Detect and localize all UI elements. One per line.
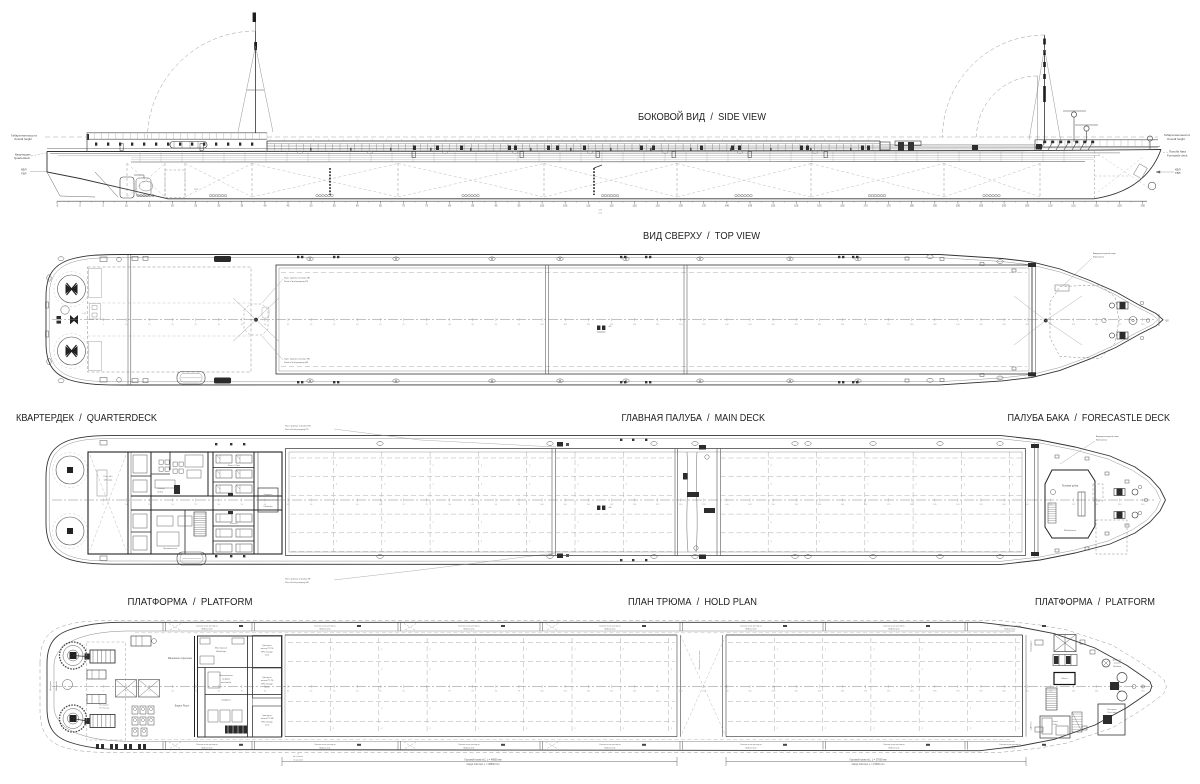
svg-text:Ballast tank: Ballast tank (202, 747, 214, 750)
svg-text:130: 130 (679, 204, 684, 208)
svg-text:Цистерна: Цистерна (263, 677, 273, 679)
svg-text:230: 230 (1141, 204, 1146, 208)
svg-text:Горл. приема топлива ПБ: Горл. приема топлива ПБ (284, 278, 310, 280)
svg-text:On position: On position (293, 759, 303, 762)
svg-text:Балластная цистерна: Балластная цистерна (196, 744, 218, 746)
svg-text:Балластная цистерна: Балластная цистерна (196, 625, 218, 627)
svg-text:Ballast tank: Ballast tank (889, 747, 901, 750)
svg-text:170: 170 (863, 204, 868, 208)
svg-text:Аккумуляторный ящик: Аккумуляторный ящик (1093, 252, 1116, 255)
svg-text:ПЛАТФОРМА / PLATFORM: ПЛАТФОРМА / PLATFORM (1035, 597, 1155, 608)
svg-text:Балластная цистерна: Балластная цистерна (599, 625, 621, 627)
svg-text:Cargo hold №1, L = 27600 mm: Cargo hold №1, L = 27600 mm (852, 763, 885, 766)
svg-text:190: 190 (956, 204, 961, 208)
svg-text:140: 140 (725, 204, 730, 208)
svg-text:Грузовой трюм №2, L = 48800 мм: Грузовой трюм №2, L = 48800 мм (465, 759, 502, 762)
svg-text:Quarterdeck: Quarterdeck (14, 156, 30, 160)
svg-text:Ballast tank: Ballast tank (605, 628, 617, 631)
svg-text:Battery box: Battery box (1093, 256, 1105, 259)
svg-text:Kladovaya: Kladovaya (264, 506, 274, 508)
svg-text:Galley: Galley (157, 491, 163, 493)
svg-text:135: 135 (702, 204, 707, 208)
svg-text:145: 145 (748, 204, 753, 208)
svg-text:Ballast tank: Ballast tank (889, 628, 901, 631)
svg-text:ВИД СВЕРХУ / TOP VIEW: ВИД СВЕРХУ / TOP VIEW (643, 231, 761, 242)
svg-text:ГЛАВНАЯ ПАЛУБА / MAIN DECK: ГЛАВНАЯ ПАЛУБА / MAIN DECK (622, 413, 766, 424)
svg-text:Машинное отделение: Машинное отделение (168, 657, 193, 660)
svg-text:запаса РТ ПБ: запаса РТ ПБ (261, 648, 274, 650)
svg-text:Тамбурная: Тамбурная (221, 700, 231, 702)
svg-text:ЦП кара: ЦП кара (104, 479, 113, 481)
svg-text:150: 150 (771, 204, 776, 208)
svg-text:Балластная цистерна: Балластная цистерна (740, 625, 762, 627)
svg-text:Рулевая рубка: Рулевая рубка (1062, 485, 1079, 488)
svg-text:Paint room: Paint room (1107, 711, 1117, 714)
svg-text:Пост НО: Пост НО (104, 476, 113, 478)
svg-text:Балластная цистерна: Балластная цистерна (740, 744, 762, 746)
svg-text:БОКОВОЙ ВИД / SIDE VIEW: БОКОВОЙ ВИД / SIDE VIEW (638, 110, 767, 123)
svg-text:Post of fuel pumping SB: Post of fuel pumping SB (285, 581, 309, 584)
svg-text:Ballast tank: Ballast tank (464, 628, 476, 631)
svg-text:HFO storage: HFO storage (261, 650, 273, 653)
svg-text:Cabin: Cabin (1053, 724, 1058, 726)
svg-text:Шахта: Шахта (1062, 678, 1069, 680)
svg-text:ГВЛ: ГВЛ (194, 189, 199, 191)
svg-text:КВАРТЕРДЕК / QUARTERDECK: КВАРТЕРДЕК / QUARTERDECK (16, 413, 157, 424)
svg-text:200: 200 (1002, 204, 1007, 208)
svg-text:Грузовой трюм №1, L = 27600 мм: Грузовой трюм №1, L = 27600 мм (850, 759, 887, 762)
svg-text:Цистерна: Цистерна (263, 645, 273, 647)
svg-text:Малярная: Малярная (1107, 709, 1116, 711)
svg-text:Point of fuel pumping SB: Point of fuel pumping SB (284, 361, 309, 364)
svg-text:Механическая: Механическая (219, 675, 232, 677)
svg-text:Каюта / Cabin: Каюта / Cabin (228, 465, 240, 467)
svg-text:Battery box: Battery box (1096, 439, 1108, 442)
svg-text:Аккумуляторный ящик: Аккумуляторный ящик (1096, 435, 1119, 438)
svg-text:100: 100 (540, 204, 545, 208)
svg-text:Overall height: Overall height (14, 137, 32, 141)
svg-text:Ballast tank: Ballast tank (605, 747, 617, 750)
svg-text:225: 225 (1117, 204, 1122, 208)
svg-text:155: 155 (794, 204, 799, 208)
svg-text:Балластная цистерна: Балластная цистерна (314, 625, 336, 627)
svg-text:Пост приема топлива ЛБ: Пост приема топлива ЛБ (285, 579, 311, 581)
svg-text:Wheelhouse: Wheelhouse (1064, 530, 1077, 532)
svg-text:нагрубка: нагрубка (222, 678, 231, 680)
svg-text:mechanical: mechanical (221, 682, 232, 684)
svg-text:Балластная цистерна: Балластная цистерна (883, 744, 905, 746)
svg-text:165: 165 (840, 204, 845, 208)
svg-text:tank: tank (265, 724, 269, 727)
svg-text:ПЛАН ТРЮМА / HOLD PLAN: ПЛАН ТРЮМА / HOLD PLAN (628, 597, 757, 608)
svg-text:Ballast tank: Ballast tank (202, 628, 214, 631)
svg-text:Afterpeak: Afterpeak (55, 680, 58, 690)
svg-text:шлюпка: шлюпка (1114, 663, 1122, 665)
svg-text:Cargo hold №2, L = 48800 mm: Cargo hold №2, L = 48800 mm (467, 763, 500, 766)
svg-text:215: 215 (1071, 204, 1076, 208)
svg-text:Ballast tank: Ballast tank (746, 628, 758, 631)
svg-text:Overall height: Overall height (1167, 137, 1185, 141)
svg-text:185: 185 (933, 204, 938, 208)
svg-text:Балластная цистерна: Балластная цистерна (999, 744, 1021, 746)
svg-text:Балластная цистерна: Балластная цистерна (458, 625, 480, 627)
svg-text:Ballast tank: Ballast tank (320, 747, 332, 750)
svg-text:Балластная цистерна: Балластная цистерна (599, 744, 621, 746)
svg-text:Ахтерпик: Ахтерпик (49, 681, 52, 690)
svg-text:ГВЛ: ГВЛ (1175, 171, 1180, 175)
svg-text:115: 115 (609, 204, 614, 208)
svg-text:Камбуз: Камбуз (158, 488, 165, 490)
svg-text:Ballast tank: Ballast tank (464, 747, 476, 750)
svg-text:195: 195 (979, 204, 984, 208)
svg-text:Каюта: Каюта (1052, 721, 1059, 723)
svg-text:Ballast tank: Ballast tank (320, 628, 332, 631)
svg-text:205: 205 (1025, 204, 1030, 208)
svg-text:tank: tank (265, 654, 269, 657)
svg-text:Point of fuel pumping PS: Point of fuel pumping PS (284, 280, 309, 283)
svg-text:HFO storage: HFO storage (261, 720, 273, 723)
svg-text:Post of fuel pumping PS: Post of fuel pumping PS (285, 428, 309, 431)
svg-text:Engine Room: Engine Room (175, 705, 190, 708)
svg-text:Ballast tank: Ballast tank (746, 747, 758, 750)
svg-text:На стоянке: На стоянке (293, 756, 304, 758)
svg-text:На валике: На валике (99, 704, 109, 706)
svg-text:запаса РТ SB: запаса РТ SB (261, 718, 274, 720)
svg-text:Провизионная: Провизионная (163, 548, 177, 550)
svg-text:Ballast tank: Ballast tank (1005, 747, 1017, 750)
svg-text:160: 160 (817, 204, 822, 208)
svg-text:Пост приема топлива ПБ: Пост приема топлива ПБ (285, 426, 311, 428)
svg-text:ГВЛ: ГВЛ (21, 171, 26, 175)
svg-text:Балластная цистерна: Балластная цистерна (999, 625, 1021, 627)
svg-text:Балластная цистерна: Балластная цистерна (458, 744, 480, 746)
svg-text:запаса РТ ЛБ: запаса РТ ЛБ (261, 680, 274, 682)
svg-text:Балластная цистерна: Балластная цистерна (314, 744, 336, 746)
svg-text:Каюта(2): Каюта(2) (230, 523, 238, 525)
svg-text:ПАЛУБА БАКА / FORECASTLE DEC: ПАЛУБА БАКА / FORECASTLE DECK (1008, 413, 1171, 424)
svg-text:Workshop: Workshop (216, 650, 227, 653)
svg-text:Цистерна: Цистерна (263, 715, 273, 717)
svg-text:Мастерская: Мастерская (215, 648, 228, 650)
svg-text:180: 180 (910, 204, 915, 208)
svg-text:Кладовая: Кладовая (264, 494, 272, 496)
svg-text:210: 210 (1048, 204, 1053, 208)
svg-text:Forecastle deck: Forecastle deck (1167, 153, 1188, 157)
svg-text:Workboat: Workboat (1113, 665, 1122, 668)
svg-text:Ballast tank: Ballast tank (1005, 628, 1017, 631)
svg-text:175: 175 (886, 204, 891, 208)
svg-text:Балластная цистерна: Балластная цистерна (883, 625, 905, 627)
svg-text:125: 125 (655, 204, 660, 208)
svg-text:110: 110 (586, 204, 591, 208)
svg-text:ФЛ: ФЛ (1165, 320, 1169, 323)
svg-text:Коффердам: Коффердам (1030, 640, 1033, 651)
svg-text:105: 105 (563, 204, 568, 208)
svg-text:tank: tank (265, 686, 269, 689)
svg-text:220: 220 (1094, 204, 1099, 208)
svg-text:Cofferdam: Cofferdam (1030, 721, 1033, 730)
svg-text:Дежурная: Дежурная (1113, 659, 1122, 661)
svg-text:HFO storage: HFO storage (261, 682, 273, 685)
svg-text:По Yaw-ng: По Yaw-ng (99, 707, 109, 709)
svg-text:ПЛАТФОРМА / PLATFORM: ПЛАТФОРМА / PLATFORM (128, 597, 253, 608)
svg-text:Форпиковая цистерна: Форпиковая цистерна (698, 649, 701, 669)
svg-text:Горл. приема топлива ЛБ: Горл. приема топлива ЛБ (284, 359, 310, 361)
svg-text:120: 120 (632, 204, 637, 208)
